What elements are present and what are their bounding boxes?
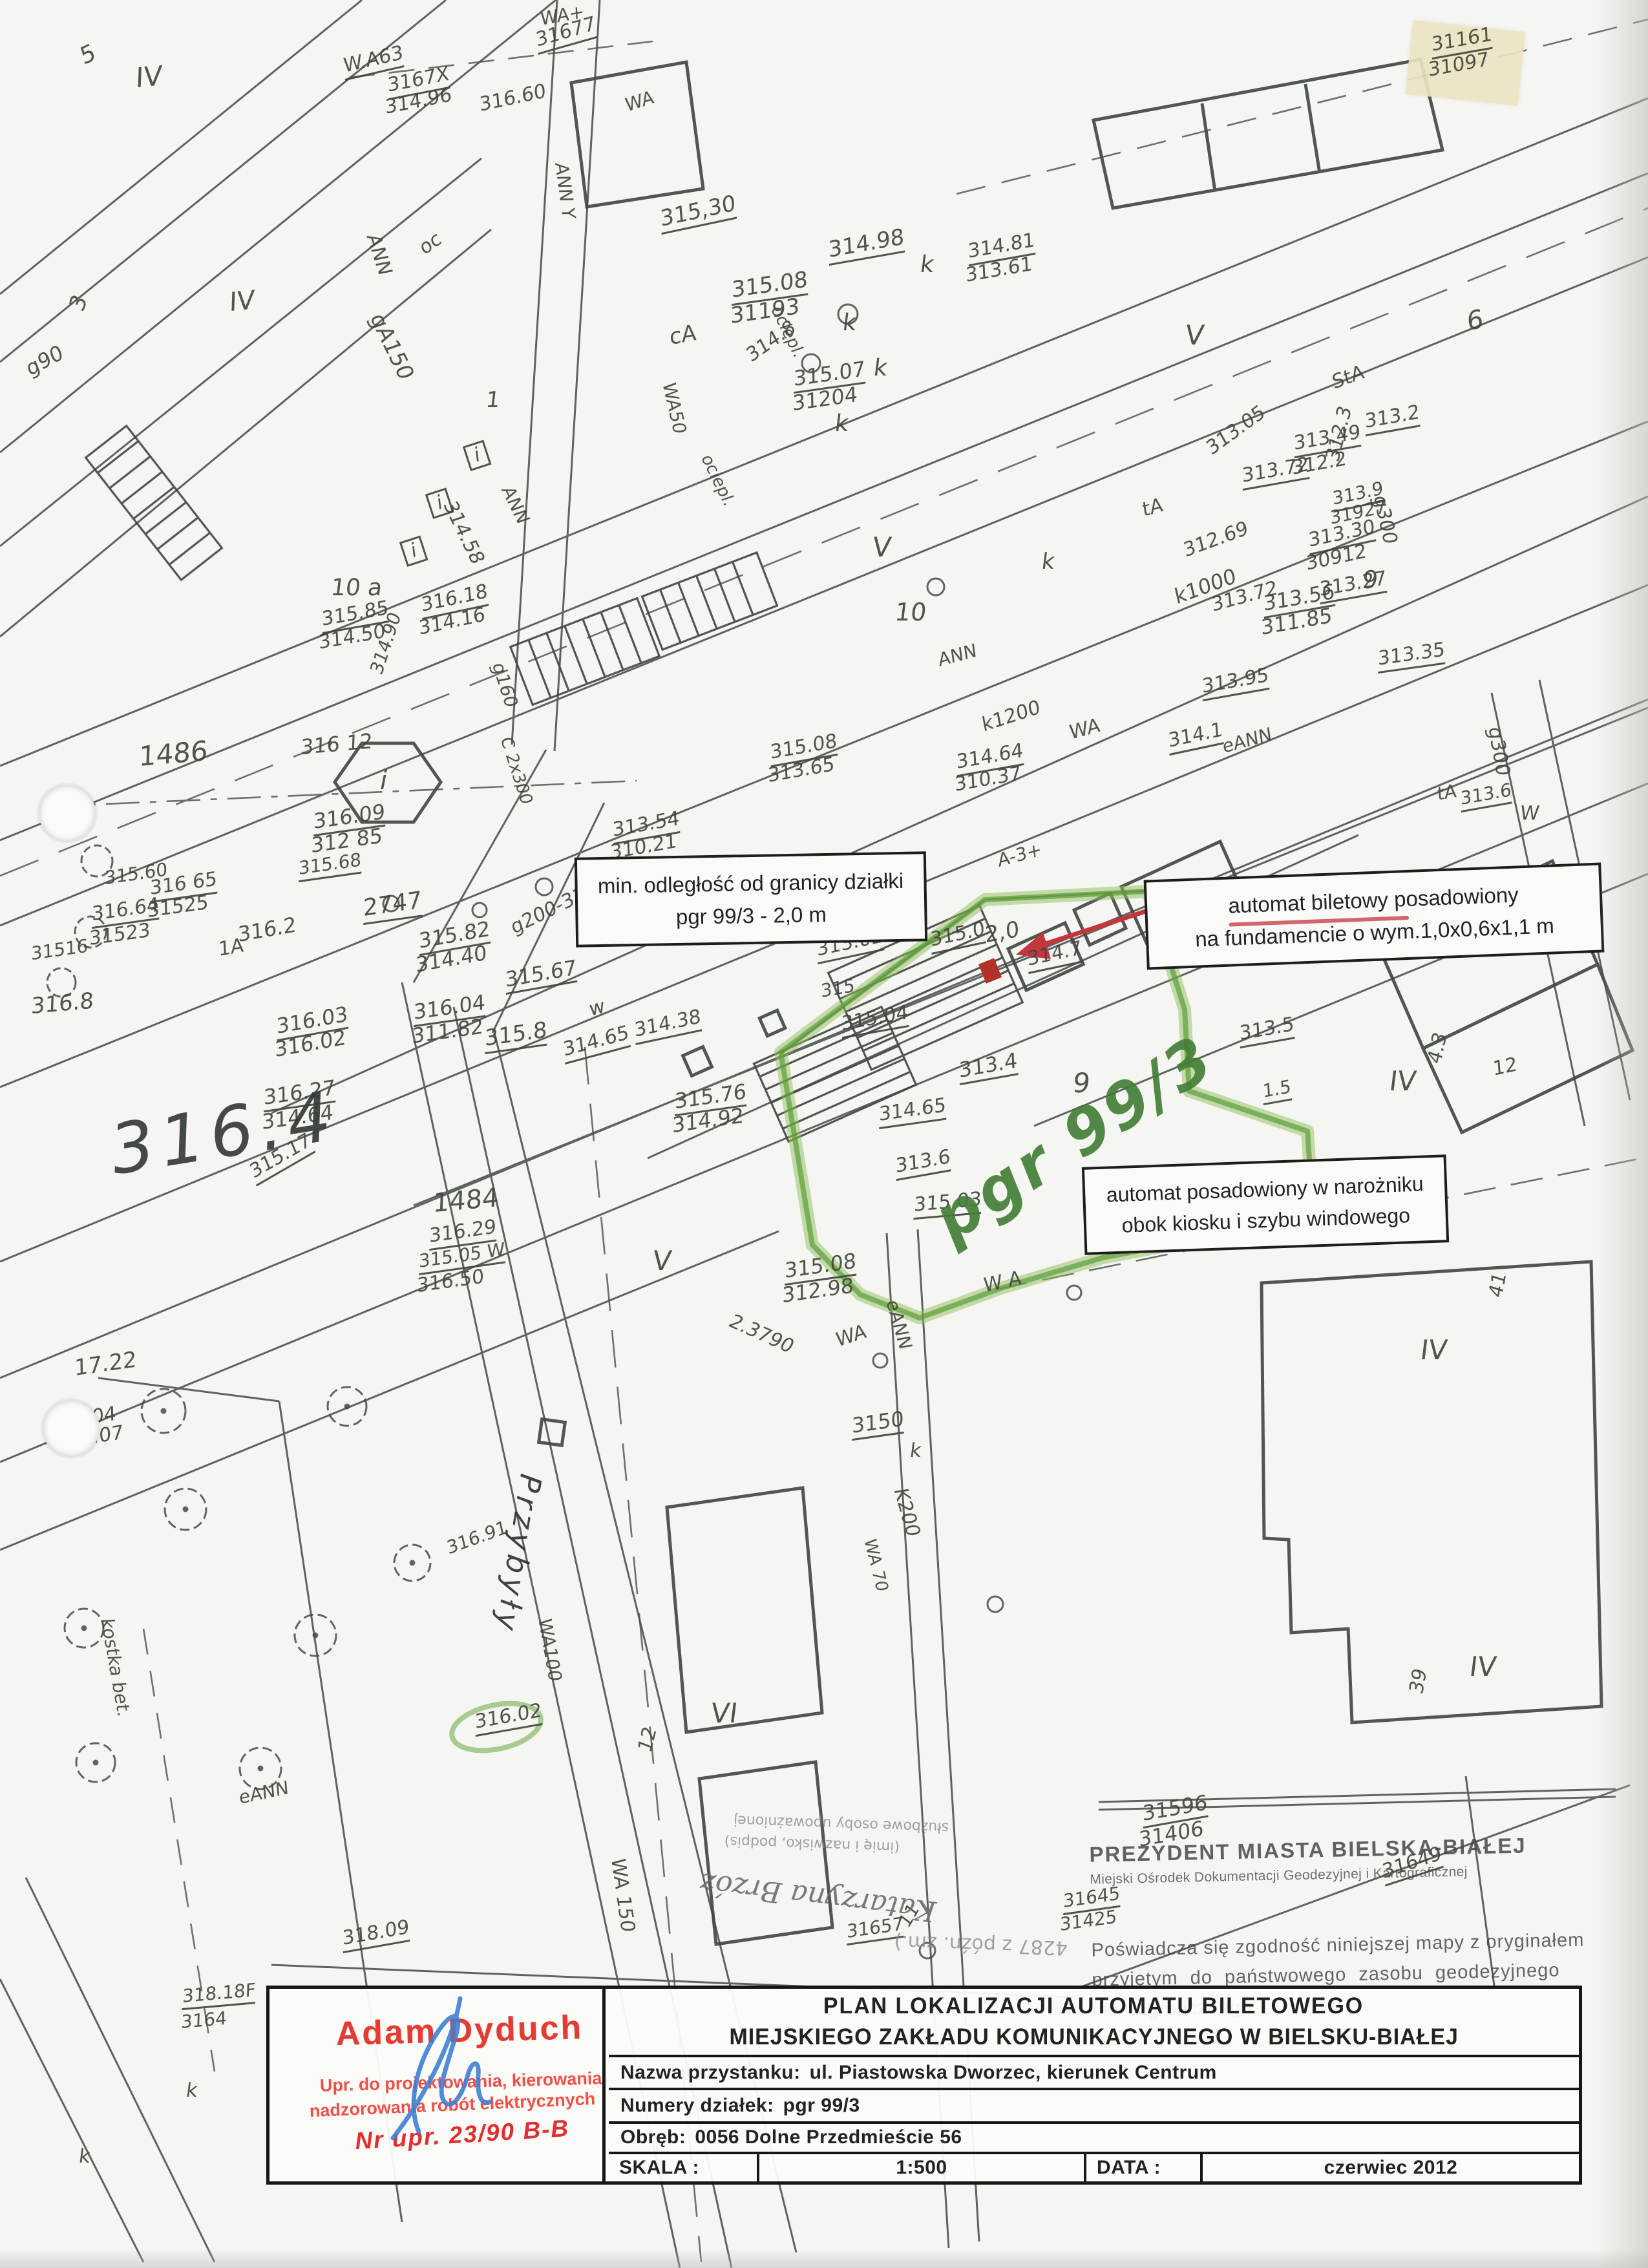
date-label: DATA : [1086,2154,1203,2181]
district-row: Obręb: 0056 Dolne Przedmieście 56 [609,2121,1579,2152]
plan-title-line1: PLAN LOKALIZACJI AUTOMATU BILETOWEGO [823,1993,1364,2019]
stop-name-row: Nazwa przystanku: ul. Piastowska Dworzec… [609,2055,1579,2088]
plan-title-line2: MIEJSKIEGO ZAKŁADU KOMUNIKACYJNEGO W BIE… [729,2024,1458,2050]
scale-label: SKALA : [609,2154,759,2181]
note-line: pgr 99/3 - 2,0 m [676,902,827,928]
tree-symbols [47,845,430,1789]
note-automat-corner: automat posadowiony w narożniku obok kio… [1082,1154,1449,1255]
punch-hole [39,785,96,842]
date-value: czerwiec 2012 [1203,2154,1579,2181]
parcel-numbers-label: Numery działek: [620,2095,774,2117]
manhole-circles [383,304,1081,1958]
registry-sticker [1405,20,1525,106]
note-line: automat biletowy posadowiony [1228,878,1519,922]
designer-name: Adam Dyduch [288,2007,631,2055]
stop-name-label: Nazwa przystanku: [620,2062,801,2084]
note-automat-foundation: automat biletowy posadowiony na fundamen… [1144,862,1605,970]
scanned-site-plan-page: 5IVIV3W.A633167X314.9631677316.60WAWA+oc… [0,0,1648,2268]
note-line: min. odległość od granicy działki [598,865,904,902]
designer-stamp: Adam Dyduch Upr. do projektowania, kiero… [288,2007,633,2153]
punch-hole [43,1400,100,1457]
note-min-distance: min. odległość od granicy działki pgr 99… [575,851,927,947]
title-row: PLAN LOKALIZACJI AUTOMATU BILETOWEGO MIE… [609,1989,1579,2055]
scale-value: 1:500 [759,2154,1086,2181]
district-value: 0056 Dolne Przedmieście 56 [695,2126,962,2148]
parcel-numbers-value: pgr 99/3 [783,2095,860,2117]
parcel-numbers-row: Numery działek: pgr 99/3 [609,2088,1579,2121]
stop-name-value: ul. Piastowska Dworzec, kierunek Centrum [810,2062,1217,2084]
green-parcel-outline [447,891,1313,1758]
note-line: automat posadowiony w narożniku [1106,1168,1424,1210]
note-line: obok kiosku i szybu windowego [1121,1203,1410,1237]
scale-date-row: SKALA : 1:500 DATA : czerwiec 2012 [609,2152,1579,2181]
